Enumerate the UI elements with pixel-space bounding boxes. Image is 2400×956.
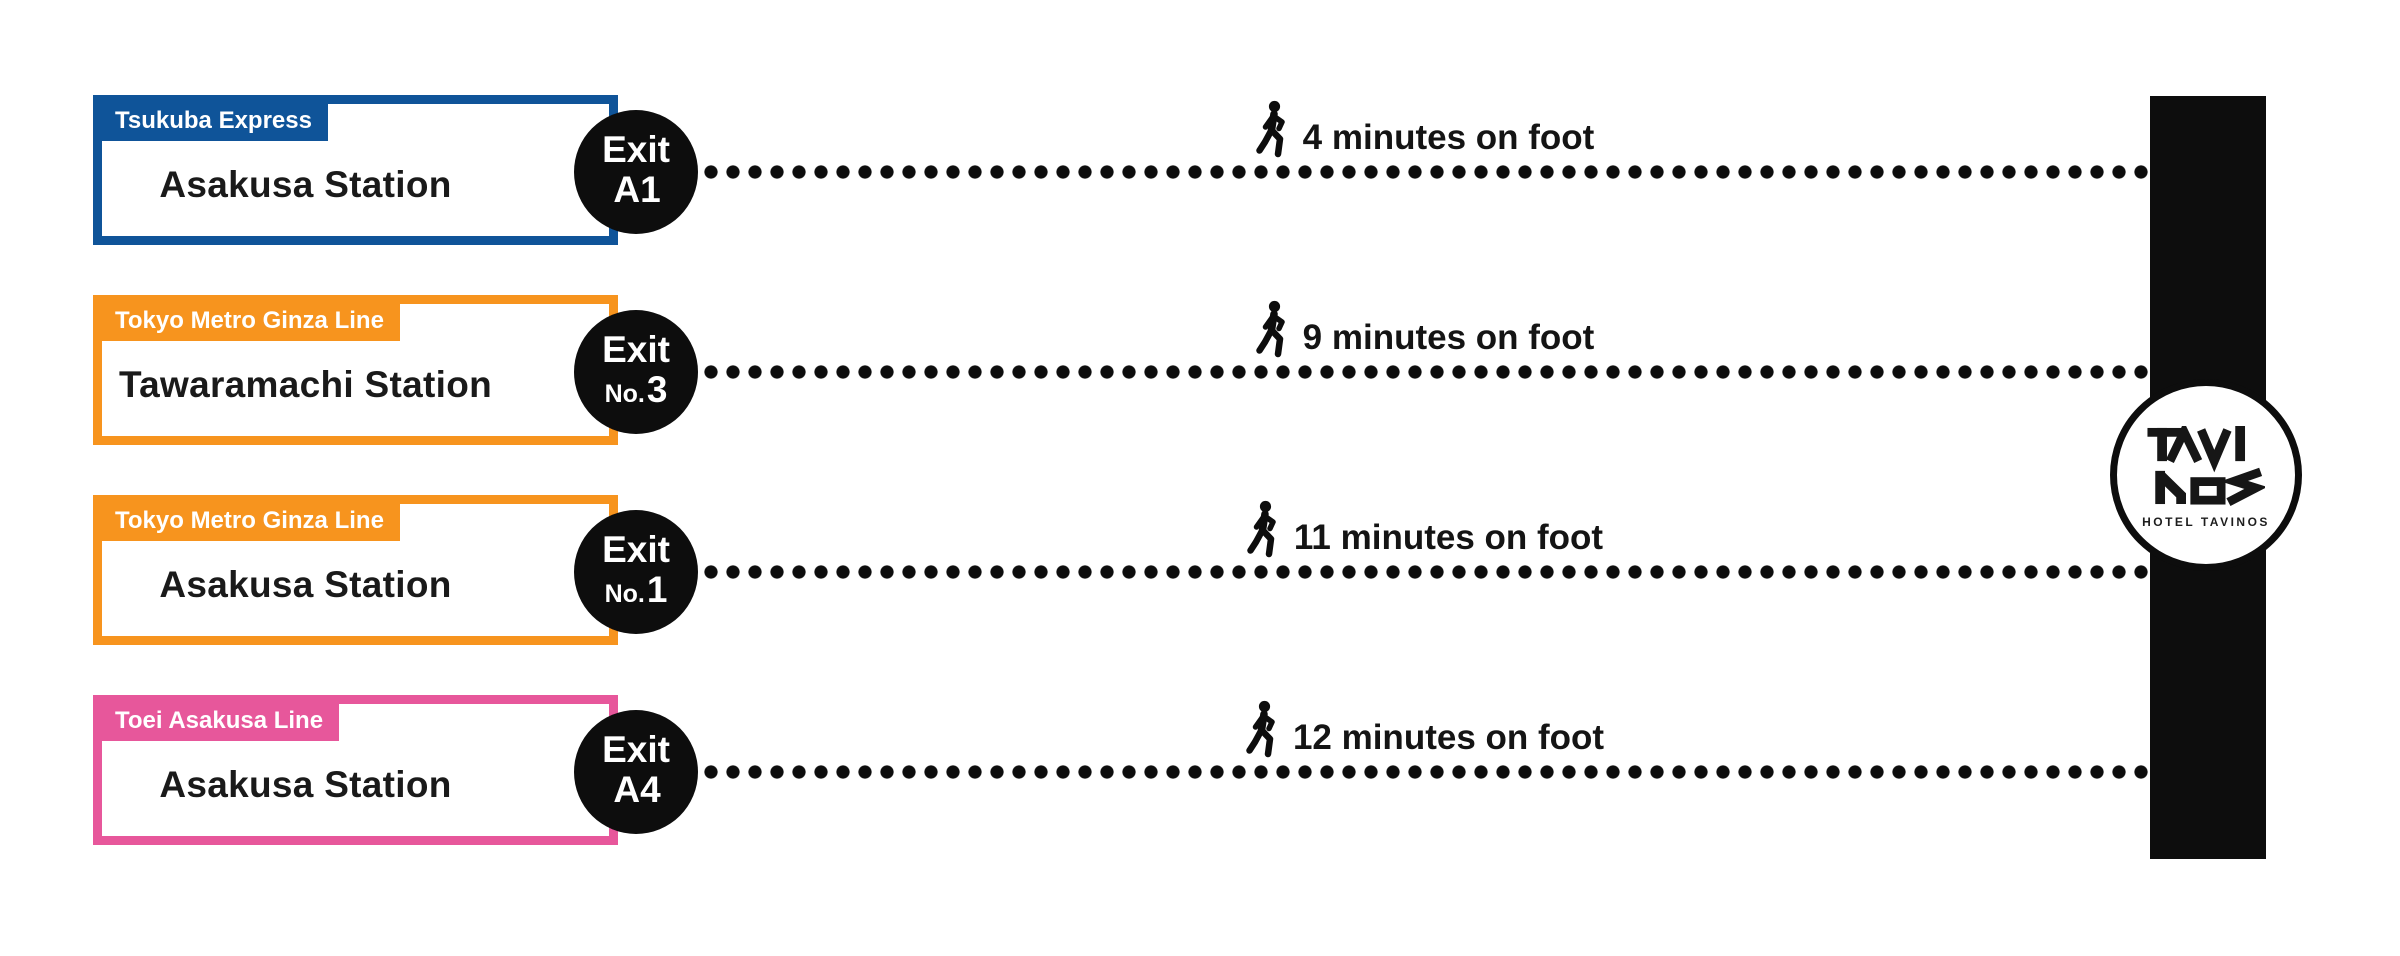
hotel-tavinos-logo-badge: HOTEL TAVINOS [2110,379,2302,571]
station-name: Asakusa Station [102,534,609,636]
station-name: Asakusa Station [102,134,609,236]
exit-word: Exit [602,331,670,368]
walking-person-icon [1256,300,1289,358]
walk-time-text: 12 minutes on foot [1293,720,1604,758]
route-row-ginza-tawaramachi: Tokyo Metro Ginza Line Tawaramachi Stati… [0,272,2400,472]
walking-person-icon [1247,500,1280,558]
exit-code: A4 [611,768,660,812]
exit-code-value: 3 [647,368,668,412]
walk-time-label: 12 minutes on foot [700,686,2150,758]
station-name: Asakusa Station [102,734,609,836]
walk-time-text: 9 minutes on foot [1303,320,1595,358]
access-diagram: Tsukuba Express Asakusa Station Exit A1 … [0,0,2400,956]
exit-code: A1 [611,168,660,212]
exit-code-value: A4 [613,768,660,812]
station-box: Tokyo Metro Ginza Line Tawaramachi Stati… [93,295,618,445]
route-row-tsukuba-express: Tsukuba Express Asakusa Station Exit A1 … [0,72,2400,272]
exit-no-prefix: No. [605,379,645,409]
walking-route-dotted-line [700,165,2150,179]
station-box: Toei Asakusa Line Asakusa Station [93,695,618,845]
exit-word: Exit [602,131,670,168]
exit-word: Exit [602,531,670,568]
exit-badge: Exit A1 [574,110,698,234]
route-row-toei-asakusa: Toei Asakusa Line Asakusa Station Exit A… [0,672,2400,872]
walk-time-label: 4 minutes on foot [700,86,2150,158]
walking-person-icon [1256,100,1289,158]
route-row-ginza-asakusa: Tokyo Metro Ginza Line Asakusa Station E… [0,472,2400,672]
walking-person-icon [1246,700,1279,758]
walking-route-dotted-line [700,365,2150,379]
exit-badge: Exit No.3 [574,310,698,434]
exit-code: No.3 [605,368,668,412]
station-name: Tawaramachi Station [102,334,609,436]
exit-word: Exit [602,731,670,768]
station-box: Tsukuba Express Asakusa Station [93,95,618,245]
exit-code: No.1 [605,568,668,612]
exit-no-prefix: No. [605,579,645,609]
exit-badge: Exit A4 [574,710,698,834]
exit-code-value: A1 [613,168,660,212]
walk-time-text: 11 minutes on foot [1294,520,1603,558]
walk-time-text: 4 minutes on foot [1303,120,1595,158]
tavinos-logo [2147,426,2265,506]
exit-badge: Exit No.1 [574,510,698,634]
station-box: Tokyo Metro Ginza Line Asakusa Station [93,495,618,645]
exit-code-value: 1 [647,568,668,612]
walk-time-label: 9 minutes on foot [700,286,2150,358]
hotel-caption: HOTEL TAVINOS [2142,515,2270,529]
walk-time-label: 11 minutes on foot [700,486,2150,558]
walking-route-dotted-line [700,765,2150,779]
walking-route-dotted-line [700,565,2150,579]
